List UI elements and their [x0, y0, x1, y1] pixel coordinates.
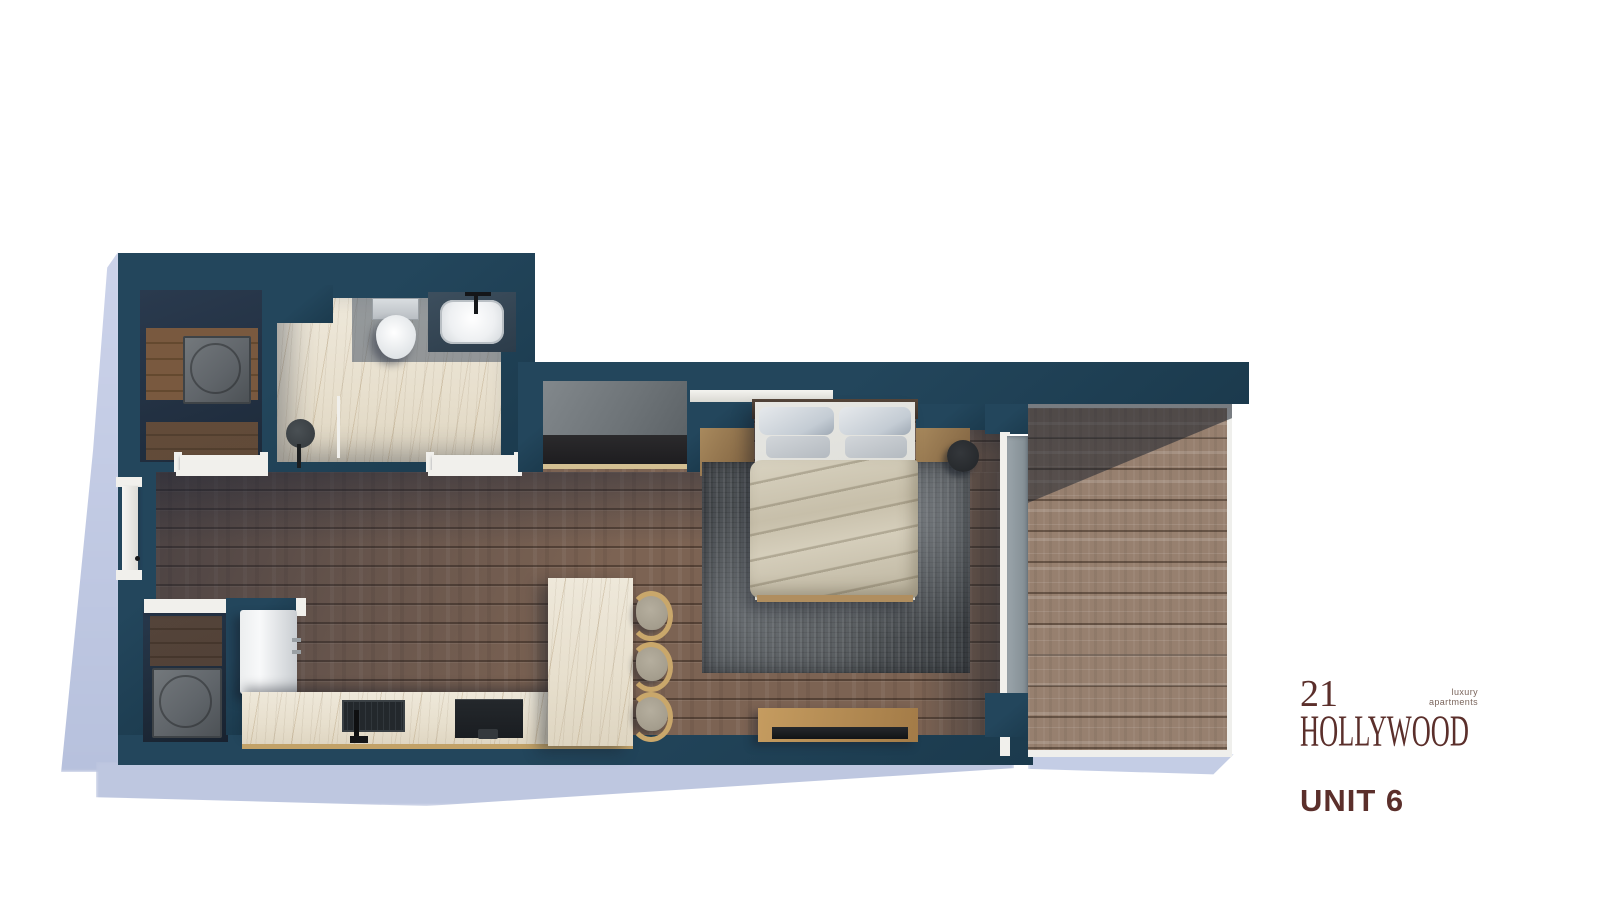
television: [772, 727, 908, 739]
door-threshold-bathroom: [428, 470, 522, 476]
cast-shadow-bottom: [96, 762, 1014, 806]
entry-door-frame-bottom: [116, 570, 142, 580]
wardrobe-front: [543, 435, 687, 466]
unit-label: UNIT 6: [1300, 783, 1490, 819]
bathroom-corner-wall: [277, 285, 333, 323]
bathroom-faucet-spout: [474, 292, 478, 314]
bedroom-right-wall-lower: [985, 693, 1033, 737]
logo-header: 21 luxury apartments: [1300, 678, 1478, 710]
water-heater-unit: [152, 668, 222, 738]
bed: [755, 402, 915, 600]
logo-number: 21: [1300, 678, 1338, 710]
pillow-right-small: [845, 436, 907, 458]
table-lamp: [947, 440, 979, 472]
bar-stool-2: [636, 644, 668, 681]
logo-tagline-line1: luxury: [1452, 687, 1478, 697]
shower-arm: [297, 444, 301, 468]
storage-closet-floor: [150, 616, 222, 666]
kitchen-sink: [342, 700, 405, 732]
cast-shadow-balcony: [1028, 754, 1234, 778]
duvet: [750, 460, 918, 598]
logo-name: HOLLYWOOD: [1300, 710, 1469, 754]
pillow-right: [839, 407, 911, 435]
laundry-closet: [140, 290, 262, 462]
closet-niche-wall-left: [518, 404, 543, 472]
bathroom-door: [432, 455, 518, 470]
refrigerator-handle: [292, 638, 301, 642]
floorplan-render: 21 luxury apartments HOLLYWOOD UNIT 6: [0, 0, 1600, 900]
bar-stool-3: [636, 694, 668, 731]
refrigerator: [240, 610, 297, 694]
wardrobe-trim: [543, 464, 687, 469]
bedroom-right-wall: [985, 404, 1033, 434]
bed-frame: [757, 595, 913, 602]
pillow-left: [759, 407, 834, 435]
logo-tagline-line2: apartments: [1429, 697, 1478, 707]
bed-alcove-wall-right: [916, 404, 985, 430]
kitchen-island: [548, 578, 633, 746]
shower-glass-panel: [337, 396, 340, 458]
laundry-door-post2: [260, 452, 268, 472]
entry-door-handle: [135, 556, 140, 561]
cooktop-knob: [478, 729, 498, 739]
door-threshold-laundry: [176, 470, 268, 476]
washer-dryer-unit: [183, 336, 251, 404]
bathroom-sink: [440, 300, 504, 344]
brand-logo: 21 luxury apartments HOLLYWOOD UNIT 6: [1300, 678, 1490, 819]
cast-shadow-left: [56, 252, 120, 772]
bed-alcove-wall-left: [687, 404, 754, 430]
kitchen-faucet-base: [350, 736, 368, 743]
bar-stool-1: [636, 593, 668, 630]
storage-closet: [143, 612, 228, 742]
fridge-nook-trim: [296, 598, 306, 616]
bathroom-faucet: [465, 292, 491, 296]
wardrobe: [543, 381, 687, 435]
pillow-left-small: [766, 436, 830, 458]
storage-door: [144, 599, 226, 613]
laundry-door: [180, 455, 264, 470]
refrigerator-handle2: [292, 650, 301, 654]
logo-tagline: luxury apartments: [1429, 687, 1478, 707]
floor-shadow-under-block: [156, 472, 716, 544]
